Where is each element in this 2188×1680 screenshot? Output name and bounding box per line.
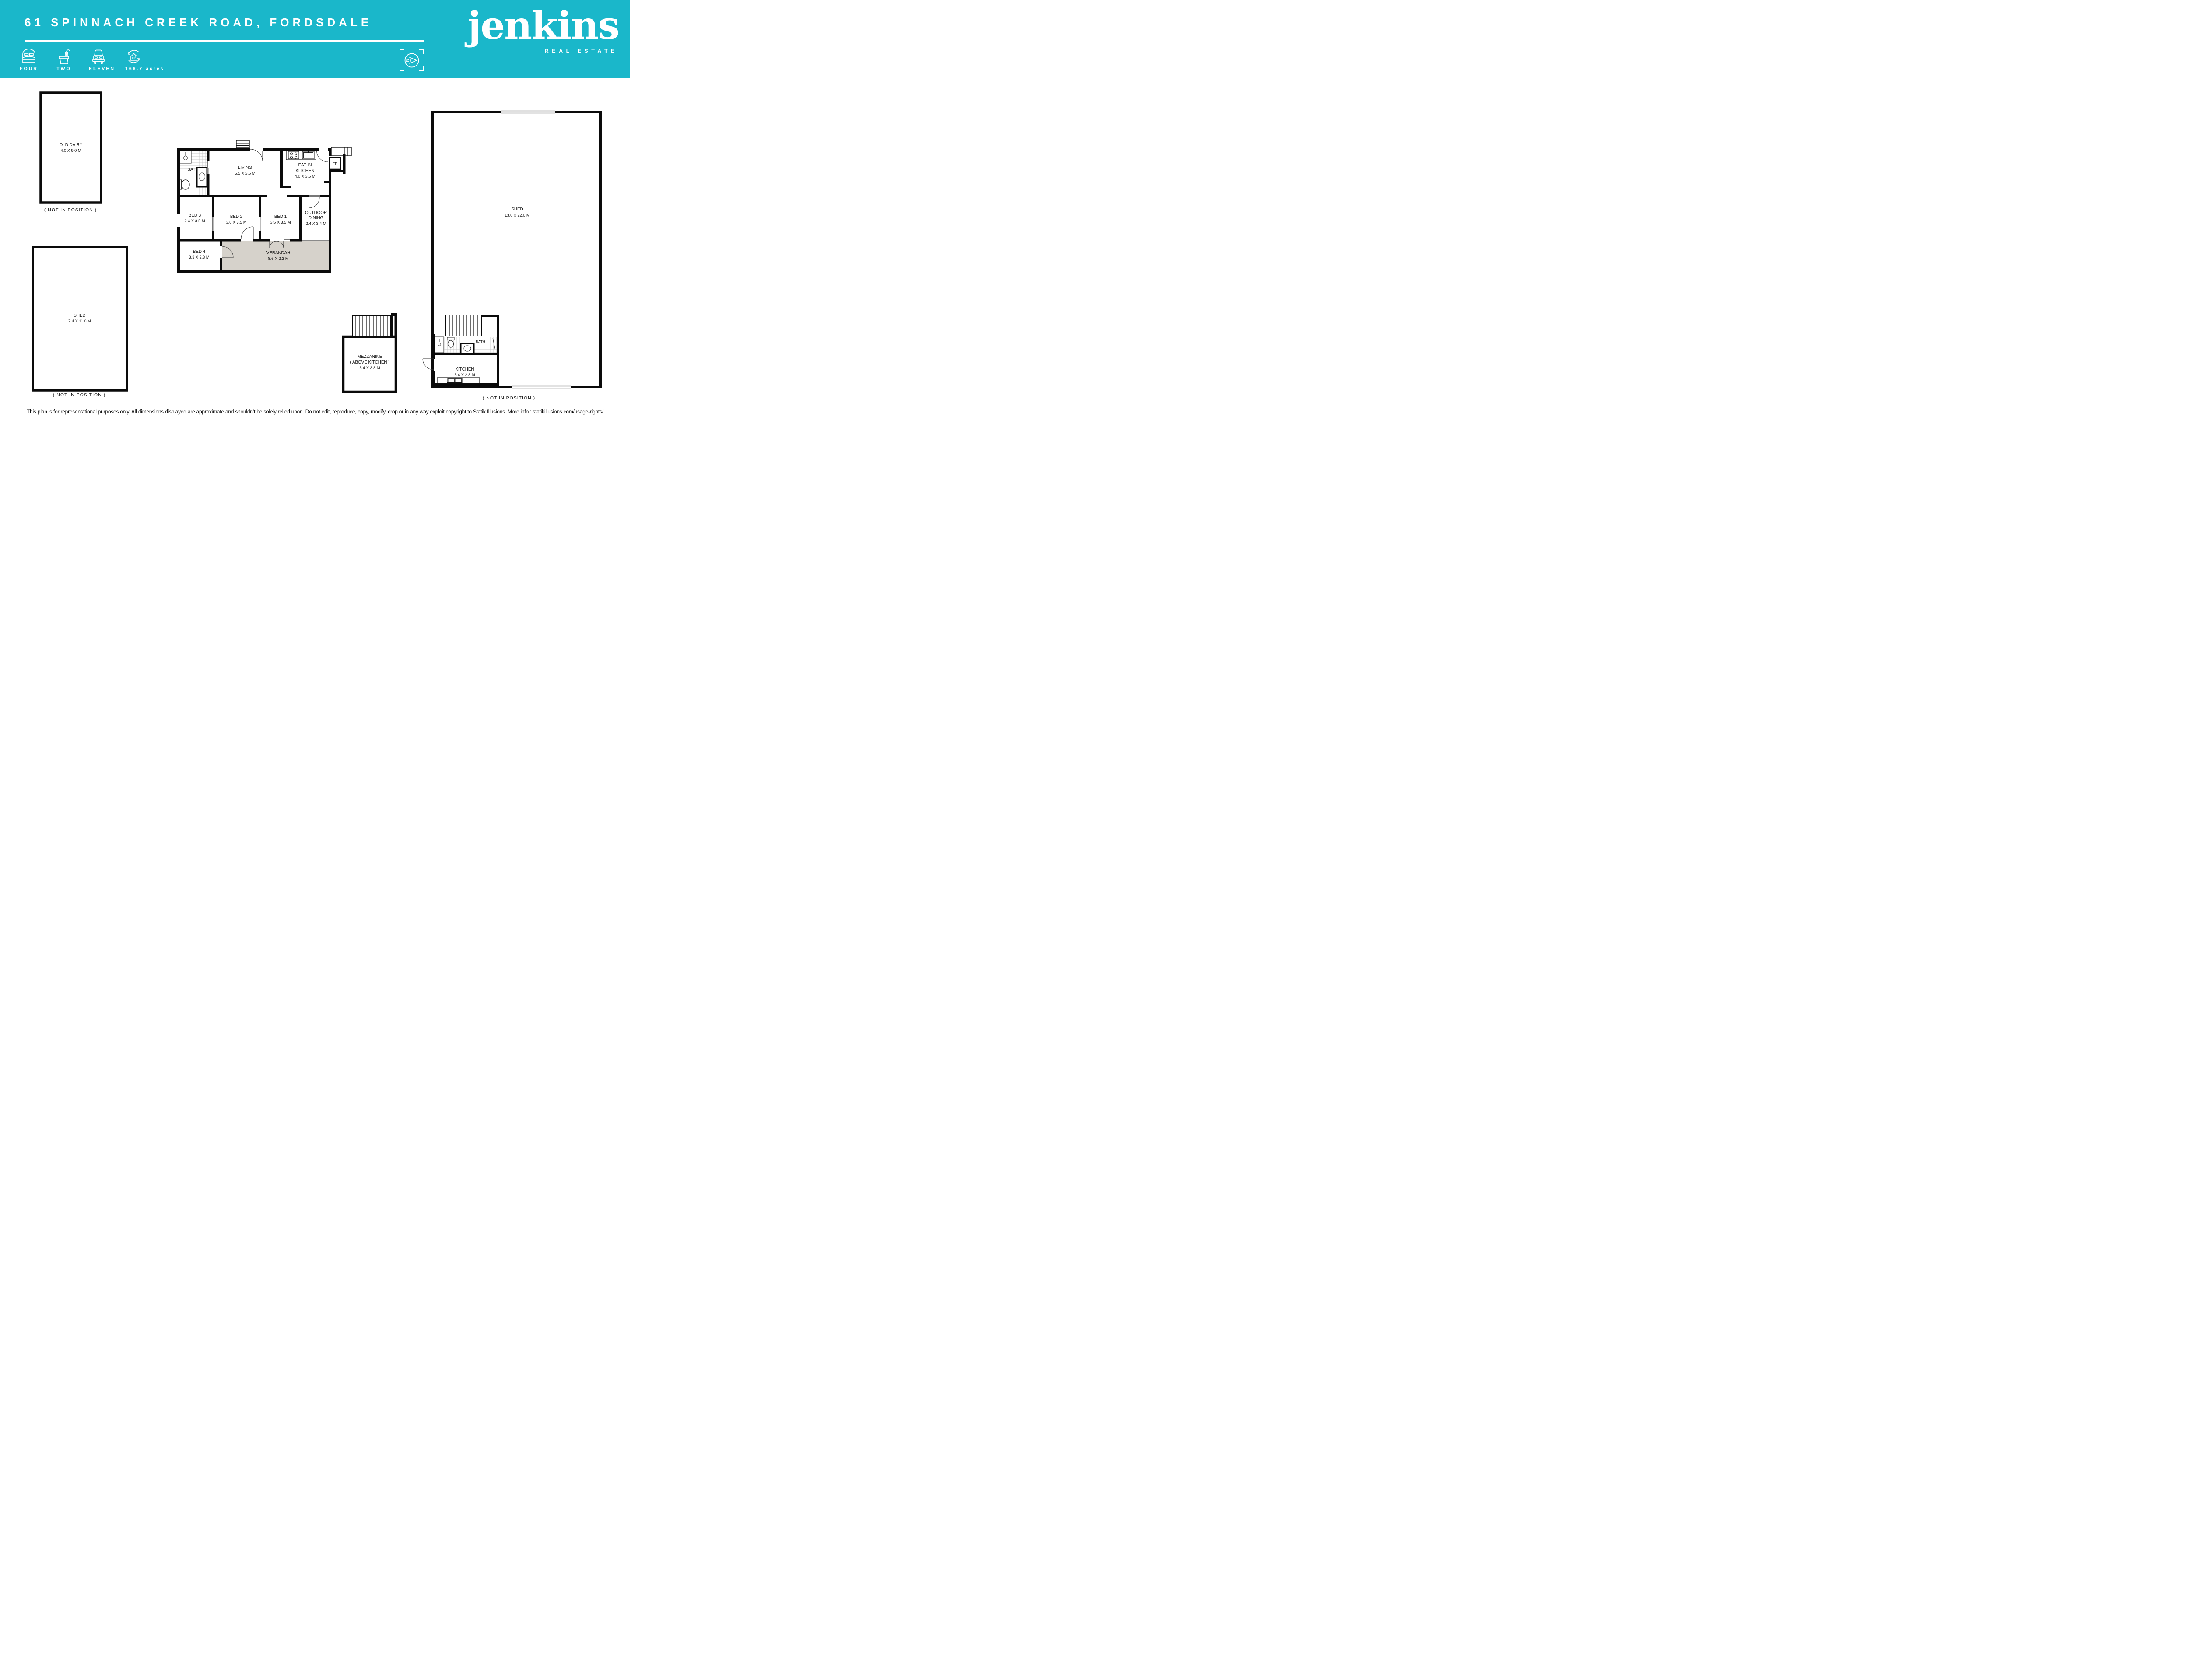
bed4-label: BED 4: [193, 249, 206, 254]
fireplace-label: FP: [333, 161, 337, 166]
old-dairy-label: OLD DAIRY: [60, 143, 83, 147]
house-plan: FP BATH LIVING 5.5 X 3.6 M EAT-IN KITCHE…: [177, 140, 351, 273]
shed-kitchen-label: KITCHEN: [455, 367, 474, 372]
mezzanine-label-2: ( ABOVE KITCHEN ): [350, 360, 390, 365]
fireplace: FP: [330, 157, 340, 169]
bed1-label: BED 1: [274, 214, 287, 219]
toilet: [179, 180, 190, 189]
large-shed-caption: ( NOT IN POSITION ): [483, 395, 535, 401]
chimney: [236, 140, 249, 148]
eat-in-kitchen-label-2: KITCHEN: [295, 168, 314, 173]
shed-bath-label: BATH: [476, 339, 485, 344]
shed-vanity: [461, 343, 474, 353]
shower: [179, 150, 191, 163]
bed2-label: BED 2: [230, 214, 242, 219]
bed2-dims: 3.6 X 3.5 M: [226, 220, 247, 224]
mezzanine-plan: MEZZANINE ( ABOVE KITCHEN ) 5.4 X 3.8 M: [344, 313, 397, 392]
disclaimer-text: This plan is for representational purpos…: [13, 409, 617, 415]
mezzanine-label-1: MEZZANINE: [358, 354, 382, 359]
old-dairy-plan: OLD DAIRY 4.0 X 9.0 M ( NOT IN POSITION …: [41, 93, 101, 213]
old-dairy-dims: 4.0 X 9.0 M: [61, 148, 81, 153]
shed-top-opening: [501, 109, 555, 115]
living-dims: 5.5 X 3.6 M: [235, 171, 256, 175]
verandah-dims: 8.6 X 2.3 M: [268, 256, 289, 261]
mezzanine-dims: 5.4 X 3.8 M: [360, 366, 380, 370]
shed-toilet: [447, 337, 454, 347]
bath-label: BATH: [187, 167, 198, 172]
large-shed-dims: 13.0 X 22.0 M: [505, 213, 529, 217]
bed4-dims: 3.3 X 2.3 M: [189, 255, 210, 259]
shed-kitchen-counter: [438, 377, 479, 383]
small-shed-label: SHED: [74, 313, 85, 318]
bed3-label: BED 3: [189, 213, 201, 218]
mezzanine-stairs: [352, 313, 397, 338]
living-label: LIVING: [238, 165, 252, 170]
eat-in-kitchen-label-1: EAT-IN: [298, 163, 312, 168]
bed1-dims: 3.5 X 3.5 M: [270, 220, 291, 224]
small-shed-dims: 7.4 X 11.0 M: [68, 319, 91, 323]
outdoor-dining-label-1: OUTDOOR: [305, 210, 327, 215]
kitchen-counter: [286, 150, 316, 160]
old-dairy-caption: ( NOT IN POSITION ): [44, 207, 97, 213]
eat-in-kitchen-dims: 4.0 X 3.6 M: [295, 174, 316, 178]
floor-plan-canvas: OLD DAIRY 4.0 X 9.0 M ( NOT IN POSITION …: [0, 0, 630, 420]
outdoor-dining-dims: 2.4 X 3.4 M: [306, 221, 326, 226]
verandah-label: VERANDAH: [266, 251, 290, 255]
small-shed-plan: SHED 7.4 X 11.0 M ( NOT IN POSITION ): [33, 247, 127, 398]
large-shed-label: SHED: [511, 207, 523, 212]
outdoor-dining-label-2: DINING: [309, 216, 323, 220]
small-shed-caption: ( NOT IN POSITION ): [53, 392, 105, 398]
bed3-dims: 2.4 X 3.5 M: [185, 219, 205, 223]
shed-kitchen-dims: 5.4 X 2.8 M: [455, 373, 475, 377]
shed-bottom-opening: [512, 384, 571, 390]
verandah-floor: [222, 241, 331, 271]
shed-shower: [435, 337, 444, 353]
entry-steps: [331, 147, 351, 156]
